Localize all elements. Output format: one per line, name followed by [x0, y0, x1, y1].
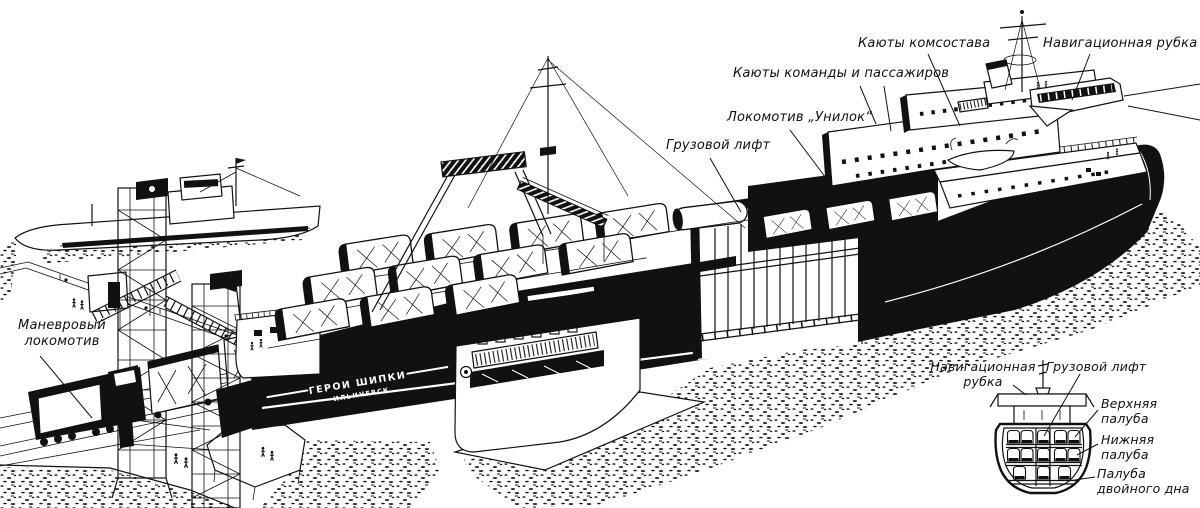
illustration-canvas: ГЕРОИ ШИПКИ ИЛЬИЧЕВСК [0, 0, 1200, 508]
inset-bridge [990, 394, 1094, 424]
callout-navigation-bridge: Навигационная рубка [1043, 36, 1197, 52]
callout-cargo-lift: Грузовой лифт [666, 138, 770, 154]
inset-label-cargo-lift: Грузовой лифт [1046, 359, 1146, 374]
inset-label-double-bottom: Палуба двойного дна [1097, 466, 1190, 497]
callout-officers-cabins: Каюты комсостава [858, 36, 990, 52]
callout-shunting-locomotive: Маневровый локомотив [10, 318, 114, 350]
inset-label-navigation-bridge: Навигационная рубка [930, 359, 1036, 390]
tugboat [15, 158, 320, 250]
inset-label-lower-deck: Нижняя палуба [1101, 432, 1154, 463]
inset-hull [996, 424, 1091, 493]
callout-crew-passenger-cabins: Каюты команды и пассажиров [733, 66, 949, 82]
callout-unilok-locomotive: Локомотив „Унилок“ [727, 110, 872, 126]
inset-label-upper-deck: Верхняя палуба [1101, 396, 1157, 427]
ferry-cutaway-figure: ГЕРОИ ШИПКИ ИЛЬИЧЕВСК [0, 0, 1200, 508]
mooring-lines [1124, 84, 1200, 120]
